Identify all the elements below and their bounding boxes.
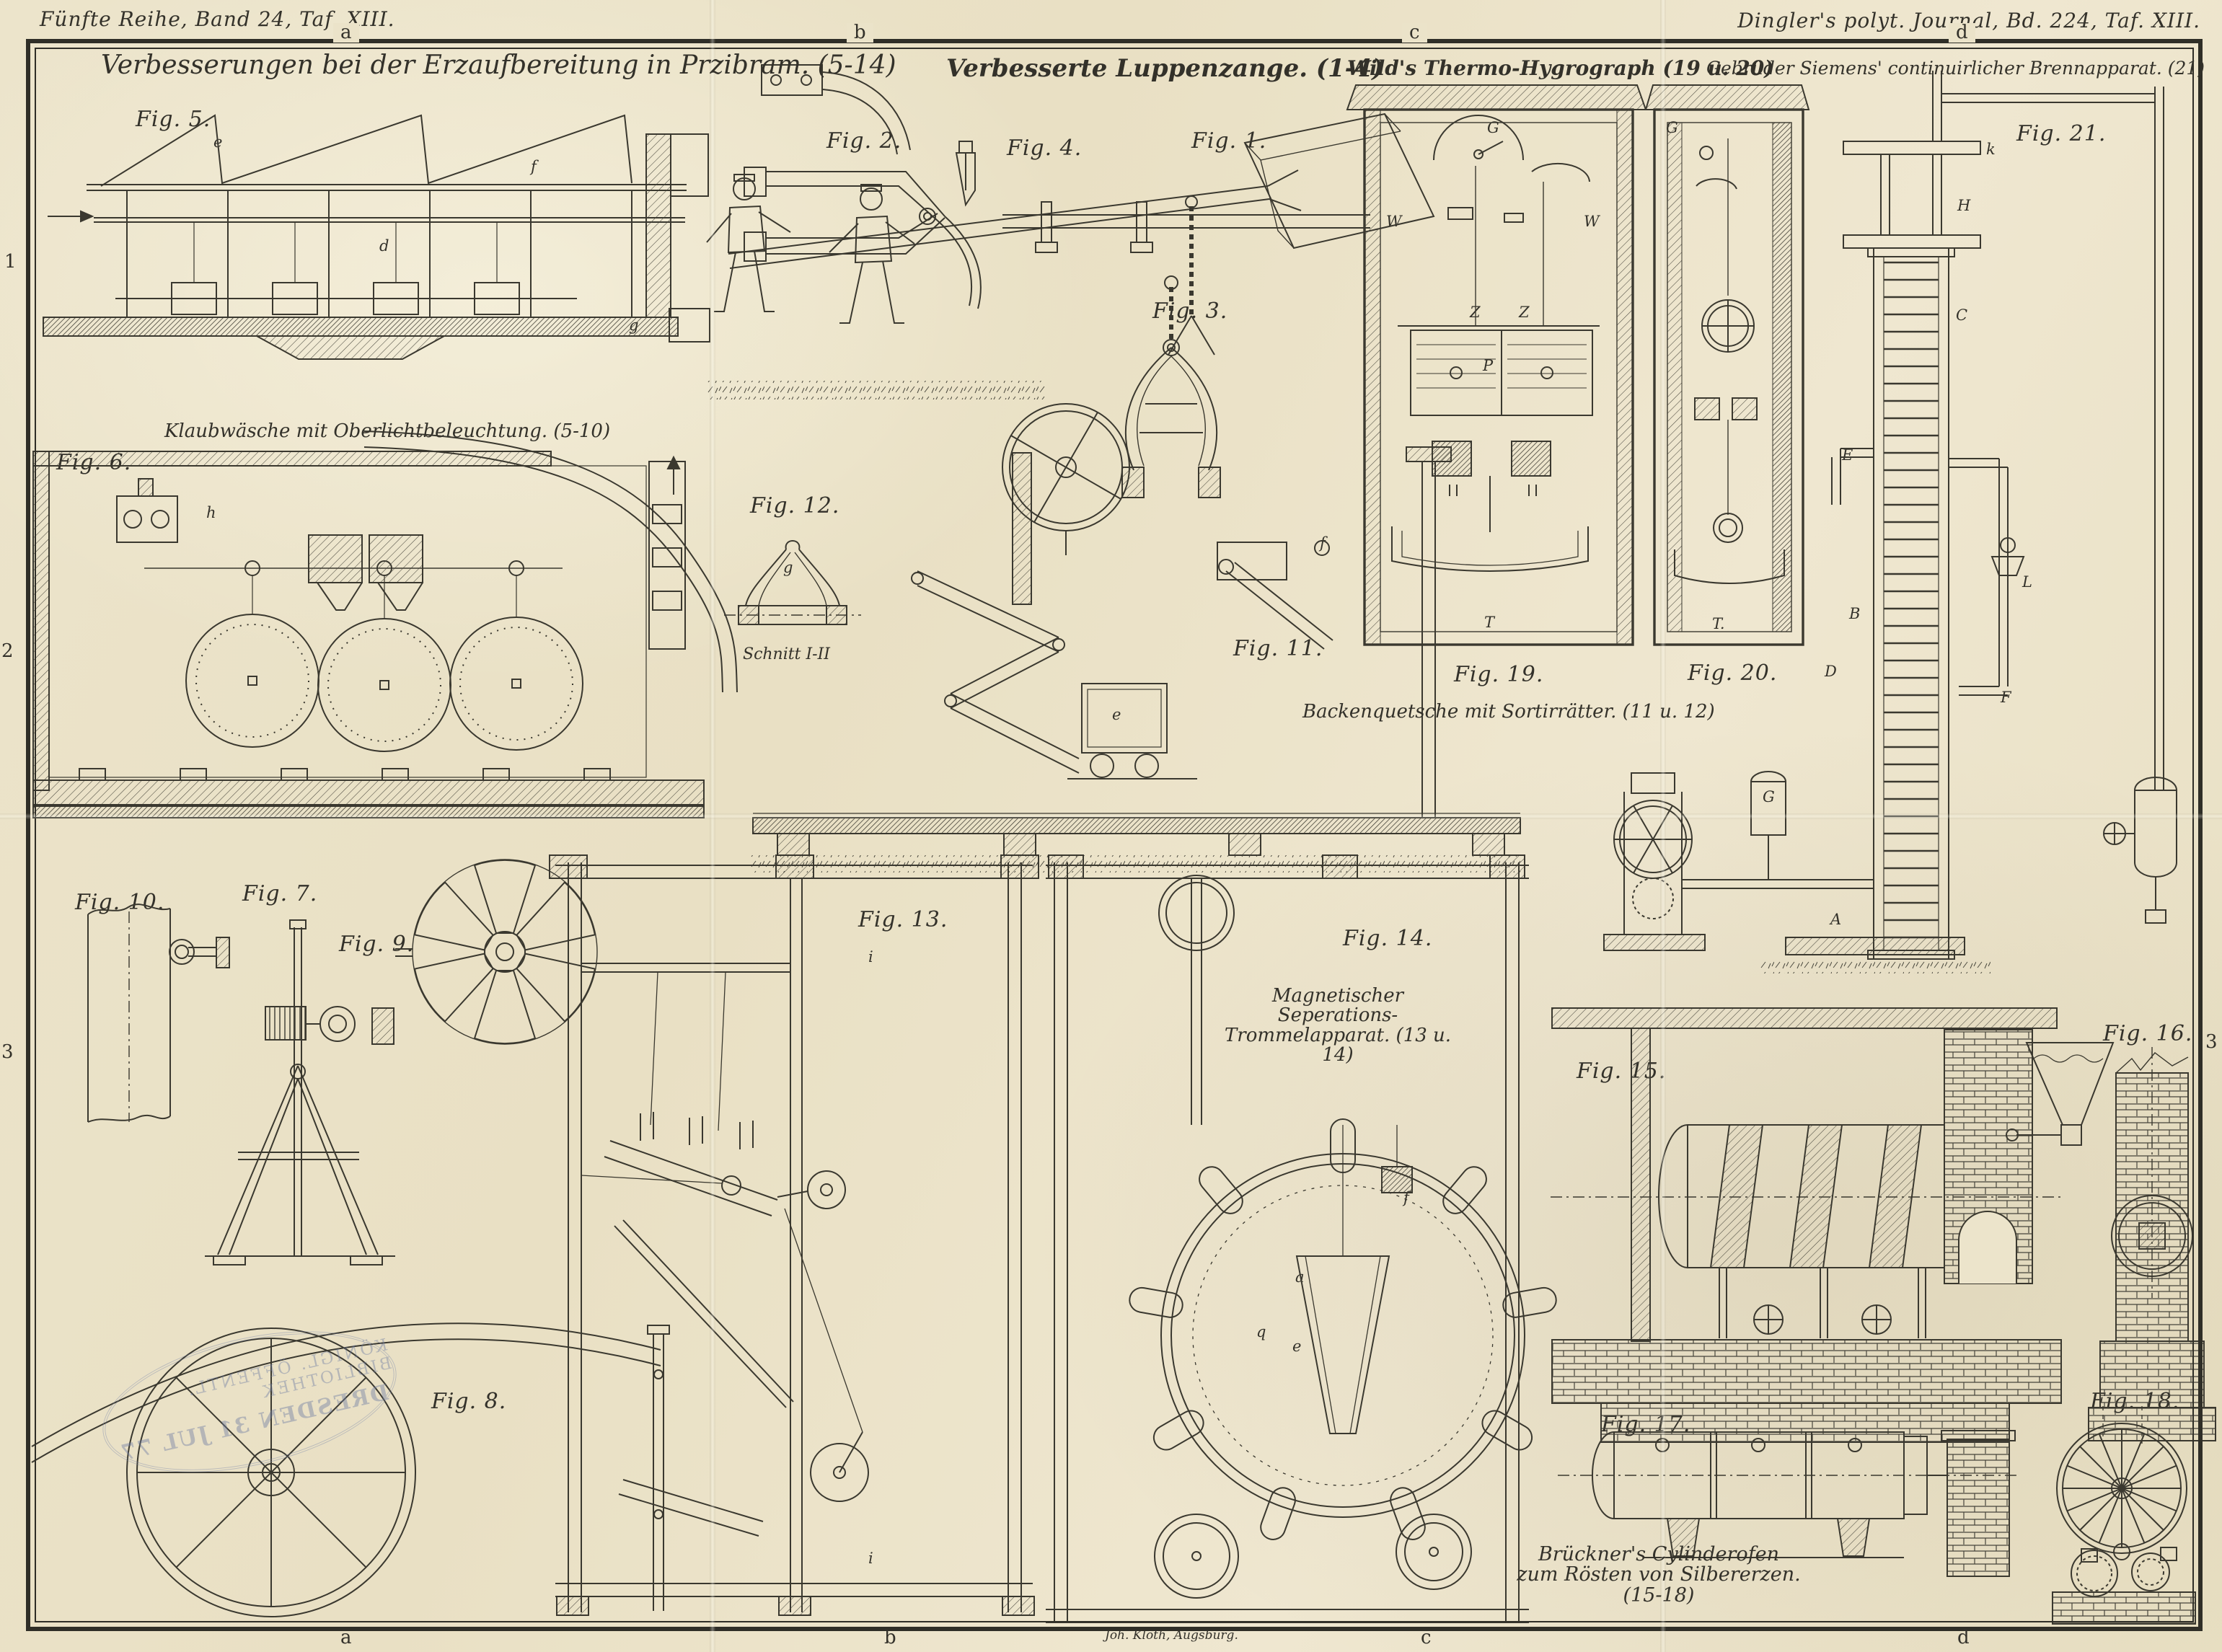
heading-brennapparat: Gebrüder Siemens' continuirlicher Brenna… xyxy=(1706,59,2205,78)
caption-cylinderofen-line2: zum Rösten von Silbererzen. (15-18) xyxy=(1500,1565,1817,1606)
bottom-marker-a: a xyxy=(340,1628,352,1648)
heading-erzaufbereitung: Verbesserungen bei der Erzaufbereitung i… xyxy=(101,52,896,79)
caption-magnet-trommel: Magnetischer Seperations- Trommelapparat… xyxy=(1219,986,1457,1065)
heading-luppenzange: Verbesserte Luppenzange. (1-4) xyxy=(946,56,1383,82)
caption-backenquetsche: Backenquetsche mit Sortirrätter. (11 u. … xyxy=(1302,702,1715,722)
top-marker-c: c xyxy=(1402,23,1427,43)
top-marker-d: d xyxy=(1949,23,1975,43)
top-marker-b: b xyxy=(847,23,873,43)
caption-klaubwaesche: Klaubwäsche mit Oberlichtbeleuchtung. (5… xyxy=(164,422,610,441)
bottom-marker-d: d xyxy=(1957,1628,1970,1648)
left-marker-3: 3 xyxy=(1,1043,14,1062)
caption-magnet-trommel-line2: Trommelapparat. (13 u. 14) xyxy=(1219,1026,1457,1066)
left-marker-1: 1 xyxy=(4,252,17,272)
printer-credit: Joh. Kloth, Augsburg. xyxy=(1105,1630,1238,1643)
left-marker-2: 2 xyxy=(1,642,14,661)
caption-cylinderofen: Brückner's Cylinderofen zum Rösten von S… xyxy=(1500,1545,1817,1606)
bottom-marker-c: c xyxy=(1421,1628,1432,1648)
engraving-plate: Fünfte Reihe, Band 24, Taf. XIII. Dingle… xyxy=(0,0,2222,1652)
caption-schnitt: Schnitt I-II xyxy=(743,646,830,663)
right-marker-3: 3 xyxy=(2205,1033,2218,1052)
caption-cylinderofen-line1: Brückner's Cylinderofen xyxy=(1500,1545,1817,1565)
top-marker-a: a xyxy=(333,23,359,43)
caption-magnet-trommel-line1: Magnetischer Seperations- xyxy=(1219,986,1457,1026)
bottom-marker-b: b xyxy=(884,1628,896,1648)
